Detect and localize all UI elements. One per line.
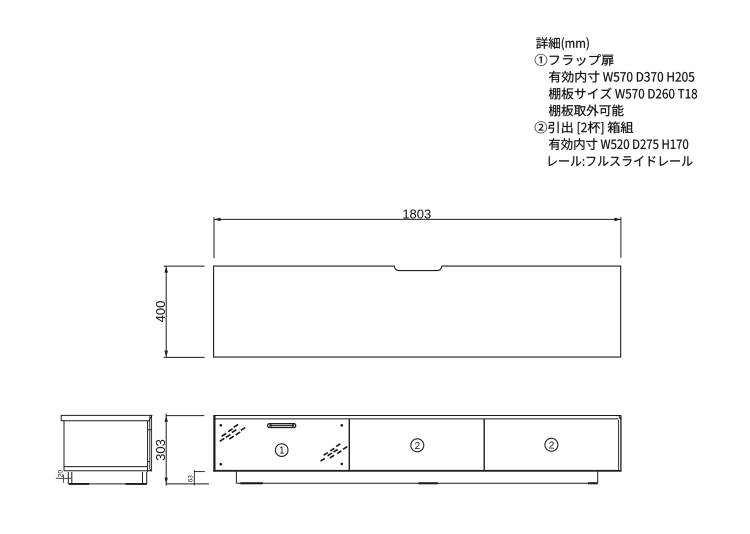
svg-text:400: 400 [153, 301, 168, 323]
svg-text:20: 20 [58, 470, 65, 478]
svg-text:1: 1 [279, 446, 285, 457]
svg-text:1803: 1803 [402, 207, 431, 222]
svg-text:2: 2 [549, 440, 555, 451]
svg-text:63: 63 [188, 475, 195, 483]
svg-text:2: 2 [415, 441, 421, 452]
svg-text:303: 303 [153, 439, 168, 461]
